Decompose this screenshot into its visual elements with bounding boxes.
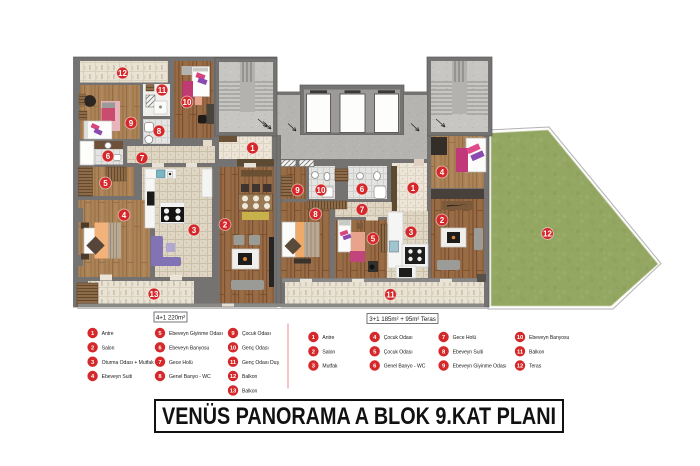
svg-text:Çocuk Odası: Çocuk Odası [242,331,271,337]
svg-text:3: 3 [192,226,197,235]
svg-text:2: 2 [223,220,228,229]
svg-text:Antre: Antre [102,331,114,337]
svg-text:Çocuk Odası: Çocuk Odası [384,335,413,341]
svg-text:7: 7 [140,154,145,163]
svg-text:Genel Banyo - WC: Genel Banyo - WC [384,364,426,370]
svg-text:4+1 220m²: 4+1 220m² [156,315,185,322]
svg-text:13: 13 [230,389,237,395]
svg-text:Teras: Teras [529,364,542,370]
svg-text:4: 4 [440,168,445,177]
svg-text:7: 7 [360,205,365,214]
svg-text:10: 10 [230,346,236,352]
svg-text:3+1 185m² + 95m² Teras: 3+1 185m² + 95m² Teras [369,316,436,323]
svg-text:7: 7 [442,335,445,341]
svg-text:Çocuk Odası: Çocuk Odası [384,350,413,356]
svg-text:10: 10 [517,335,523,341]
svg-text:Mutfak: Mutfak [322,364,337,370]
svg-text:Antre: Antre [322,335,334,341]
svg-text:Salon: Salon [102,346,115,352]
svg-text:Balkon: Balkon [242,374,257,380]
svg-text:10: 10 [317,186,326,195]
svg-text:Genç Odası: Genç Odası [242,346,269,352]
svg-text:Ebeveyn Banyosu: Ebeveyn Banyosu [169,346,210,352]
svg-text:5: 5 [371,234,376,243]
svg-text:Genel Banyo - WC: Genel Banyo - WC [169,374,211,380]
svg-text:Ebeveyn Giyinme Odası: Ebeveyn Giyinme Odası [169,331,223,337]
svg-text:10: 10 [183,98,192,107]
svg-text:Ebeveyn Suiti: Ebeveyn Suiti [102,374,133,380]
svg-text:13: 13 [150,290,159,299]
svg-text:11: 11 [386,290,395,299]
svg-text:Balkon: Balkon [242,389,257,395]
svg-text:1: 1 [250,144,255,153]
svg-text:9: 9 [129,119,134,128]
svg-text:11: 11 [517,350,524,356]
svg-text:VENÜS PANORAMA A BLOK 9.KAT PL: VENÜS PANORAMA A BLOK 9.KAT PLANI [162,403,556,430]
svg-text:Oturma Odası + Mutfak: Oturma Odası + Mutfak [102,360,155,366]
svg-text:3: 3 [409,228,414,237]
svg-text:Balkon: Balkon [529,350,544,356]
svg-text:12: 12 [517,364,523,370]
svg-text:Ebeveyn Suiti: Ebeveyn Suiti [453,350,484,356]
svg-text:12: 12 [230,374,236,380]
svg-text:6: 6 [360,185,365,194]
svg-text:2: 2 [312,350,315,356]
svg-text:12: 12 [543,229,552,238]
svg-text:12: 12 [118,69,127,78]
svg-text:Gece Holü: Gece Holü [169,360,193,366]
svg-text:5: 5 [103,179,108,188]
svg-text:8: 8 [157,127,162,136]
svg-text:Ebeveyn Banyosu: Ebeveyn Banyosu [529,335,570,341]
svg-text:11: 11 [230,360,237,366]
svg-text:11: 11 [158,86,167,95]
svg-text:Ebeveyn Giyinme Odası: Ebeveyn Giyinme Odası [453,364,507,370]
svg-text:Salon: Salon [322,350,335,356]
svg-text:9: 9 [295,186,300,195]
svg-text:2: 2 [91,346,94,352]
svg-text:2: 2 [440,216,445,225]
svg-text:Genç Odası Duş: Genç Odası Duş [242,360,279,366]
svg-text:7: 7 [158,360,161,366]
svg-text:8: 8 [313,210,318,219]
svg-text:6: 6 [106,152,111,161]
svg-text:4: 4 [122,211,127,220]
svg-text:1: 1 [411,184,416,193]
svg-text:Gece Holü: Gece Holü [453,335,477,341]
